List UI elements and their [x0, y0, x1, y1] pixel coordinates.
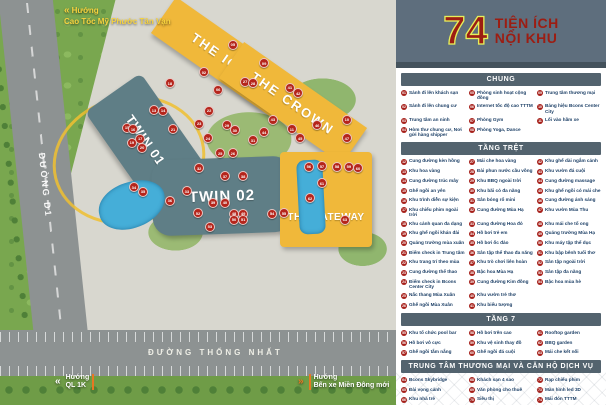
- legend-item-number: 14: [401, 178, 407, 184]
- map-marker: 20: [137, 143, 147, 153]
- map-marker: 18: [165, 78, 175, 88]
- legend-item-label: Ghế ngồi an yên: [409, 188, 445, 193]
- legend-item-number: 57: [401, 350, 407, 356]
- direction-label-expressway: «Hướng Cao Tốc Mỹ Phước Tân Vạn: [64, 5, 171, 27]
- legend-item-number: 20: [401, 240, 407, 246]
- legend-item-label: Ghế ngồi đá cuội: [477, 349, 515, 354]
- map-marker: 31: [248, 135, 258, 145]
- legend-item: 49Quảng trường Mùa Hạ: [537, 229, 601, 239]
- legend-item: 51Khu bập bênh tuổi thơ: [537, 248, 601, 258]
- legend-item-label: Mái che hoa vàng: [477, 158, 516, 163]
- legend-item-label: Khu máy tập thể dục: [545, 240, 591, 245]
- legend-item-label: Điểm check in Bcons Center City: [409, 279, 465, 290]
- divider-bar: [92, 374, 94, 390]
- legend-item-label: Khu bập bênh tuổi thơ: [545, 250, 595, 255]
- map-marker: 22: [204, 106, 214, 116]
- legend-item-label: Cung đường Hoa đỏ: [477, 221, 523, 226]
- legend-item-number: 46: [537, 198, 543, 204]
- legend-item-number: 36: [469, 250, 475, 256]
- legend-item: 63Mái che kết nối: [537, 348, 601, 358]
- legend-item-number: 53: [537, 270, 543, 276]
- legend-item-number: 03: [401, 118, 407, 124]
- map-marker: 26: [228, 148, 238, 158]
- legend-item: 14Cung đường trúc mây: [401, 176, 465, 186]
- legend-item: 38Bậc hoa Mùa Hạ: [469, 267, 533, 277]
- legend-item: 59Khu vệ sinh thay đồ: [469, 338, 533, 348]
- legend-item-label: Khu cảnh quan đa dạng: [409, 221, 462, 226]
- legend-item-number: 56: [401, 340, 407, 346]
- legend-item-number: 10: [537, 104, 543, 110]
- legend-item-label: Khu vệ sinh thay đồ: [477, 340, 522, 345]
- arrow-right-icon: »: [298, 376, 304, 388]
- map-marker: 45: [295, 133, 305, 143]
- legend-item-number: 51: [537, 250, 543, 256]
- amenities-title-line2: NỘI KHU: [495, 31, 559, 46]
- road-left-label: ĐƯỜNG D1: [37, 152, 54, 218]
- legend-item: 61Rooftop garden: [537, 328, 601, 338]
- amenities-count: 74: [443, 11, 488, 51]
- legend-item-number: 63: [537, 350, 543, 356]
- legend-item: 29Khu BBQ ngoài trời: [469, 176, 533, 186]
- legend-item: 55Khu tổ chức pool bar: [401, 328, 465, 338]
- legend-item-label: Khu hoa vàng: [409, 168, 440, 173]
- legend-item-number: 55: [401, 330, 407, 336]
- legend-item: 31Sân bóng rổ mini: [469, 196, 533, 206]
- legend-item-label: Sân tập thể thao đa năng: [477, 250, 533, 255]
- legend-item-number: 44: [537, 178, 543, 184]
- legend-item-label: Khu ghế ngồi có mái che: [545, 188, 600, 193]
- legend-item-number: 26: [401, 303, 407, 309]
- legend-item-label: Bảng hiệu Bcons Center City: [545, 103, 601, 114]
- legend-item-number: 07: [469, 118, 475, 124]
- legend-item-number: 35: [469, 240, 475, 246]
- legend-item: 54Bậc hoa mùa hè: [537, 277, 601, 291]
- legend-item: 58Hồ bơi trên cao: [469, 328, 533, 338]
- direction-bl-text: Hướng QL 1K: [66, 374, 90, 391]
- legend-item: 28Đài phun nước cầu vồng: [469, 167, 533, 177]
- section-header: TẦNG TRỆT: [401, 142, 601, 155]
- legend-item: 56Hồ bơi vô cực: [401, 338, 465, 348]
- legend-item-number: 41: [469, 303, 475, 309]
- map-marker: 24: [203, 133, 213, 143]
- legend-item-number: 08: [469, 127, 475, 133]
- legend-item-number: 25: [401, 293, 407, 299]
- legend-item: 11Lối vào hầm xe: [537, 115, 601, 125]
- legend-item-number: 29: [469, 178, 475, 184]
- map-marker: 55: [279, 208, 289, 218]
- section-header: CHUNG: [401, 73, 601, 86]
- legend-item: 06Internet tốc độ cao TTTM: [469, 102, 533, 116]
- legend-item-label: Cung đường kèn hồng: [409, 158, 460, 163]
- legend-item-number: 61: [537, 330, 543, 336]
- legend-item-number: 48: [537, 221, 543, 227]
- legend-item-number: 06: [469, 104, 475, 110]
- map-marker: 39: [208, 198, 218, 208]
- legend-item: 17Khu chiếu phim ngoài trời: [401, 205, 465, 219]
- legend-item-number: 43: [537, 169, 543, 175]
- legend-item-label: Khu trang trí theo mùa: [409, 259, 459, 264]
- map-marker: 51: [238, 215, 248, 225]
- legend-item-label: Nấc thang Mùa Xuân: [409, 292, 455, 297]
- legend-item-number: 01: [401, 90, 407, 96]
- legend-item: 25Nấc thang Mùa Xuân: [401, 291, 465, 301]
- legend-item-label: Quảng trường Mùa Hạ: [545, 230, 595, 235]
- legend-item-number: 31: [469, 198, 475, 204]
- amenities-panel: 74 TIỆN ÍCH NỘI KHU CHUNG01Sảnh đi lên k…: [396, 0, 606, 405]
- direction-top-line2: Cao Tốc Mỹ Phước Tân Vạn: [64, 17, 171, 26]
- legend-item-label: Bậc hoa Mùa Hạ: [477, 269, 513, 274]
- arrow-left-icon: «: [64, 5, 70, 16]
- legend-item-label: Khu bãi cỏ đa năng: [477, 188, 520, 193]
- map-marker: 60: [353, 163, 363, 173]
- direction-top-line1: Hướng: [72, 6, 99, 15]
- legend-item: 30Khu bãi cỏ đa năng: [469, 186, 533, 196]
- legend-item: 08Phòng Yoga, Dance: [469, 125, 533, 139]
- legend-item-label: Hồ bơi vô cực: [409, 340, 441, 345]
- legend-item: 12Cung đường kèn hồng: [401, 157, 465, 167]
- legend-item-label: Sân bóng rổ mini: [477, 197, 515, 202]
- map-marker: 30: [230, 125, 240, 135]
- legend-item: 39Cung đường Kim đồng: [469, 277, 533, 291]
- legend-item-label: Ghế ngồi Mùa Xuân: [409, 302, 453, 307]
- legend-item-label: Ghế ngồi tắm nắng: [409, 349, 451, 354]
- legend-item: 02Sảnh đi lên chung cư: [401, 102, 465, 116]
- legend-item: 15Ghế ngồi an yên: [401, 186, 465, 196]
- legend-item-label: Internet tốc độ cao TTTM: [477, 103, 533, 108]
- legend-item: 52Sân tập ngoài trời: [537, 258, 601, 268]
- legend-item: 62BBQ garden: [537, 338, 601, 348]
- legend-item-label: Phòng sinh hoạt cộng đồng: [477, 90, 533, 101]
- map-marker: 10: [342, 115, 352, 125]
- legend-item-label: Khu vườn trẻ thơ: [477, 292, 516, 297]
- direction-br-line1: Hướng: [314, 374, 338, 381]
- legend-item-number: 38: [469, 270, 475, 276]
- map-marker: 63: [340, 215, 350, 225]
- map-marker: 25: [215, 148, 225, 158]
- direction-label-ql1k: « Hướng QL 1K: [55, 374, 94, 391]
- legend-item: 09Trung tâm thương mại: [537, 88, 601, 102]
- section-items: 12Cung đường kèn hồng13Khu hoa vàng14Cun…: [401, 157, 601, 310]
- legend-item-label: Cung đường thể thao: [409, 269, 457, 274]
- watermark-pattern: [396, 371, 606, 405]
- legend-item-label: Khu ghế ngồi khán đài: [409, 230, 459, 235]
- road-bottom-label: ĐƯỜNG THỐNG NHẤT: [148, 348, 283, 357]
- legend-item: 20Quảng trường mùa xuân: [401, 238, 465, 248]
- legend-item: 60Ghế ngồi đá cuội: [469, 348, 533, 358]
- legend-item: 50Khu máy tập thể dục: [537, 238, 601, 248]
- legend-item-label: Quảng trường mùa xuân: [409, 240, 464, 245]
- legend-item-label: Cung đường trúc mây: [409, 178, 458, 183]
- map-marker: 35: [138, 187, 148, 197]
- legend-item-number: 12: [401, 159, 407, 165]
- direction-bl-line1: Hướng: [66, 374, 90, 381]
- legend-item-number: 45: [537, 188, 543, 194]
- map-marker: 61: [317, 178, 327, 188]
- section-header: TẦNG 7: [401, 313, 601, 326]
- map-marker: 05: [228, 40, 238, 50]
- legend-item-label: Hồ bơi ốc đảo: [477, 240, 508, 245]
- arrow-left-icon: «: [55, 376, 61, 388]
- legend-item-number: 59: [469, 340, 475, 346]
- map-marker: 54: [267, 209, 277, 219]
- legend-item-label: Khu trình diễn sự kiện: [409, 197, 459, 202]
- legend-item-number: 62: [537, 340, 543, 346]
- legend-item-label: Cung đường Mùa Hạ: [477, 207, 524, 212]
- map-marker: 53: [205, 222, 215, 232]
- amenities-header: 74 TIỆN ÍCH NỘI KHU: [396, 0, 606, 62]
- direction-label-busstation: » Hướng Bến xe Miền Đông mới: [298, 374, 389, 391]
- legend-item: 53Sân tập đa năng: [537, 267, 601, 277]
- map-marker: 56: [304, 162, 314, 172]
- legend-item: 22Khu trang trí theo mùa: [401, 258, 465, 268]
- legend-item: 35Hồ bơi ốc đảo: [469, 238, 533, 248]
- legend-item-number: 22: [401, 260, 407, 266]
- map-marker: 14: [158, 106, 168, 116]
- legend-item: 10Bảng hiệu Bcons Center City: [537, 102, 601, 116]
- legend-item-label: Khu mái che tổ ong: [545, 221, 589, 226]
- map-marker: 46: [312, 120, 322, 130]
- amenities-title: TIỆN ÍCH NỘI KHU: [495, 16, 559, 45]
- map-marker: 42: [293, 88, 303, 98]
- legend-item: 24Điểm check in Bcons Center City: [401, 277, 465, 291]
- legend-item: 19Khu ghế ngồi khán đài: [401, 229, 465, 239]
- map-marker: 19: [127, 138, 137, 148]
- legend-item-label: Khu vườn Mùa Thu: [545, 207, 588, 212]
- direction-bl-line2: QL 1K: [66, 382, 87, 389]
- legend-item-number: 37: [469, 260, 475, 266]
- legend-item-number: 58: [469, 330, 475, 336]
- amenities-title-line1: TIỆN ÍCH: [495, 16, 559, 31]
- legend-item-label: Khu ghế dài ngắm cảnh: [545, 158, 598, 163]
- legend-item-label: Hồ bơi trên cao: [477, 330, 512, 335]
- divider-bar: [309, 374, 311, 390]
- legend-item-label: BBQ garden: [545, 340, 572, 345]
- legend-item-label: Bậc hoa mùa hè: [545, 279, 581, 284]
- legend-item: 27Mái che hoa vàng: [469, 157, 533, 167]
- legend-item-label: Đài phun nước cầu vồng: [477, 168, 532, 173]
- legend-item-label: Sân tập ngoài trời: [545, 259, 585, 264]
- map-marker: 38: [238, 171, 248, 181]
- map-marker: 57: [317, 161, 327, 171]
- legend-item: 45Khu ghế ngồi có mái che: [537, 186, 601, 196]
- legend-item-number: 13: [401, 169, 407, 175]
- legend-item-label: Rooftop garden: [545, 330, 580, 335]
- legend-item: 48Khu mái che tổ ong: [537, 219, 601, 229]
- legend-item: 43Khu vườn đá cuội: [537, 167, 601, 177]
- map-marker: 09: [259, 58, 269, 68]
- legend-item-label: Mái che kết nối: [545, 349, 579, 354]
- legend-item: 44Cung đường massage: [537, 176, 601, 186]
- legend-item: 42Khu ghế dài ngắm cảnh: [537, 157, 601, 167]
- legend-item-label: Sảnh đi lên chung cư: [409, 103, 457, 108]
- legend-item-label: Hòm thư chung cư, Nơi gửi hàng shipper: [409, 127, 465, 138]
- legend-item-number: 18: [401, 221, 407, 227]
- legend-item-number: 33: [469, 221, 475, 227]
- legend-item: 34Hồ bơi trẻ em: [469, 229, 533, 239]
- legend-item: 21Điểm check in Trung tâm: [401, 248, 465, 258]
- map-marker: 06: [213, 85, 223, 95]
- legend-item-label: Điểm check in Trung tâm: [409, 250, 464, 255]
- legend-item-number: 28: [469, 169, 475, 175]
- legend-item: 57Ghế ngồi tắm nắng: [401, 348, 465, 358]
- legend-item-number: 30: [469, 188, 475, 194]
- legend-item: 32Cung đường Mùa Hạ: [469, 205, 533, 219]
- legend-item-label: Lối vào hầm xe: [545, 117, 579, 122]
- legend-item-number: 54: [537, 279, 543, 285]
- legend-item: 36Sân tập thể thao đa năng: [469, 248, 533, 258]
- legend-item-label: Khu vườn đá cuội: [545, 168, 585, 173]
- legend-item: 47Khu vườn Mùa Thu: [537, 205, 601, 219]
- legend-item-label: Phòng Yoga, Dance: [477, 127, 521, 132]
- map-marker: 62: [305, 193, 315, 203]
- map-marker: 44: [259, 127, 269, 137]
- legend-item: 01Sảnh đi lên khách sạn: [401, 88, 465, 102]
- legend-item-label: Khu biểu tượng: [477, 302, 512, 307]
- legend-item-label: Cung đường ánh sáng: [545, 197, 595, 202]
- legend-item-number: 11: [537, 118, 543, 124]
- legend-item-number: 23: [401, 270, 407, 276]
- legend-item-number: 49: [537, 231, 543, 237]
- legend-item-label: Cung đường massage: [545, 178, 595, 183]
- legend-item-label: Sảnh đi lên khách sạn: [409, 90, 458, 95]
- legend-item-number: 05: [469, 90, 475, 96]
- legend-item-label: Khu chiếu phim ngoài trời: [409, 207, 465, 218]
- map-marker: 21: [168, 124, 178, 134]
- legend-item-number: 32: [469, 207, 475, 213]
- legend-item: 03Trung tâm an ninh: [401, 115, 465, 125]
- map-marker: 28: [248, 78, 258, 88]
- legend-item-number: 04: [401, 127, 407, 133]
- legend-item-number: 47: [537, 207, 543, 213]
- legend-item-number: 19: [401, 231, 407, 237]
- map-marker: 40: [220, 198, 230, 208]
- map-marker: 47: [342, 133, 352, 143]
- map-marker: 37: [220, 171, 230, 181]
- map-marker: 16: [128, 124, 138, 134]
- legend-item-label: Khu trò chơi liên hoàn: [477, 259, 527, 264]
- legend-item: 41Khu biểu tượng: [469, 301, 533, 311]
- legend-item-number: 39: [469, 279, 475, 285]
- masterplan-brochure: ĐƯỜNG D1 ĐƯỜNG THỐNG NHẤT THE ICON THE C…: [0, 0, 606, 405]
- legend-item-label: Phòng Gym: [477, 117, 503, 122]
- legend-item-label: Trung tâm an ninh: [409, 117, 450, 122]
- map-marker: 36: [165, 196, 175, 206]
- legend-item-label: Khu tổ chức pool bar: [409, 330, 456, 335]
- section-items: 01Sảnh đi lên khách sạn02Sảnh đi lên chu…: [401, 88, 601, 139]
- legend-item-number: 09: [537, 90, 543, 96]
- legend-item: 18Khu cảnh quan đa dạng: [401, 219, 465, 229]
- legend-item-number: 02: [401, 104, 407, 110]
- legend-item-number: 17: [401, 207, 407, 213]
- legend-item-number: 52: [537, 260, 543, 266]
- legend-item-number: 50: [537, 240, 543, 246]
- map-marker: 32: [194, 163, 204, 173]
- legend-item: 16Khu trình diễn sự kiện: [401, 196, 465, 206]
- direction-br-line2: Bến xe Miền Đông mới: [314, 382, 390, 389]
- map-marker: 23: [194, 119, 204, 129]
- legend-item-number: 34: [469, 231, 475, 237]
- legend-item-number: 15: [401, 188, 407, 194]
- legend-item-label: Khu BBQ ngoài trời: [477, 178, 521, 183]
- section-items: 55Khu tổ chức pool bar56Hồ bơi vô cực57G…: [401, 328, 601, 357]
- direction-br-text: Hướng Bến xe Miền Đông mới: [314, 374, 390, 391]
- legend-item-number: 42: [537, 159, 543, 165]
- legend-item-label: Sân tập đa năng: [545, 269, 581, 274]
- legend-item: 23Cung đường thể thao: [401, 267, 465, 277]
- legend-item: 13Khu hoa vàng: [401, 167, 465, 177]
- legend-item: 05Phòng sinh hoạt cộng đồng: [469, 88, 533, 102]
- legend-item: 04Hòm thư chung cư, Nơi gửi hàng shipper: [401, 125, 465, 139]
- map-marker: 58: [332, 162, 342, 172]
- legend-item-number: 16: [401, 198, 407, 204]
- legend-item-number: 24: [401, 279, 407, 285]
- legend-item-label: Trung tâm thương mại: [545, 90, 595, 95]
- map-marker: 33: [182, 186, 192, 196]
- legend-item: 37Khu trò chơi liên hoàn: [469, 258, 533, 268]
- legend-item: 40Khu vườn trẻ thơ: [469, 291, 533, 301]
- legend-item-number: 21: [401, 250, 407, 256]
- legend-item-number: 27: [469, 159, 475, 165]
- site-map: ĐƯỜNG D1 ĐƯỜNG THỐNG NHẤT THE ICON THE C…: [0, 0, 396, 405]
- legend-item: 33Cung đường Hoa đỏ: [469, 219, 533, 229]
- map-marker: 52: [193, 208, 203, 218]
- legend-item-number: 60: [469, 350, 475, 356]
- legend-item-number: 40: [469, 293, 475, 299]
- legend-item: 46Cung đường ánh sáng: [537, 196, 601, 206]
- legend-item-label: Hồ bơi trẻ em: [477, 230, 507, 235]
- legend-item: 07Phòng Gym: [469, 115, 533, 125]
- map-marker: 02: [199, 67, 209, 77]
- legend-item: 26Ghế ngồi Mùa Xuân: [401, 301, 465, 311]
- map-marker: 11: [287, 124, 297, 134]
- map-marker: 43: [268, 115, 278, 125]
- legend-sections: CHUNG01Sảnh đi lên khách sạn02Sảnh đi lê…: [396, 68, 606, 405]
- legend-item-label: Cung đường Kim đồng: [477, 279, 529, 284]
